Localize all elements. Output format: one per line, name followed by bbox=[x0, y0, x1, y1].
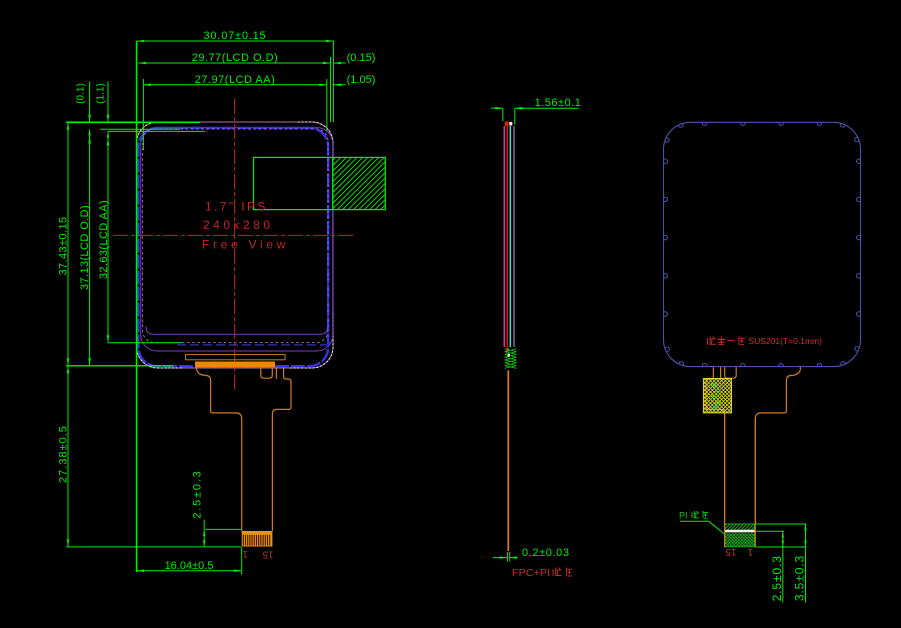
svg-text:(1.05): (1.05) bbox=[347, 74, 376, 86]
svg-text:(1.1): (1.1) bbox=[96, 83, 107, 104]
svg-text:15: 15 bbox=[262, 548, 274, 559]
svg-text:(0.1): (0.1) bbox=[76, 83, 87, 104]
svg-text:37.13(LCD O.D): 37.13(LCD O.D) bbox=[79, 205, 91, 290]
svg-text:27.38±0.5: 27.38±0.5 bbox=[58, 425, 70, 483]
svg-text:240x280: 240x280 bbox=[203, 218, 274, 232]
svg-text:(0.15): (0.15) bbox=[347, 52, 376, 64]
svg-text:1.56±0.1: 1.56±0.1 bbox=[535, 97, 582, 109]
svg-text:3.5±0.3: 3.5±0.3 bbox=[793, 555, 807, 601]
svg-text:0.2±0.03: 0.2±0.03 bbox=[522, 547, 570, 559]
svg-text:1: 1 bbox=[242, 548, 248, 559]
svg-text:29.77(LCD O.D): 29.77(LCD O.D) bbox=[192, 52, 278, 64]
svg-text:SUS201(T=0.1mm): SUS201(T=0.1mm) bbox=[749, 336, 823, 346]
svg-text:32.63(LCD AA): 32.63(LCD AA) bbox=[98, 200, 110, 279]
svg-text:FPC+PI: FPC+PI bbox=[512, 567, 550, 579]
svg-text:Free View: Free View bbox=[202, 237, 289, 251]
svg-text:15: 15 bbox=[725, 546, 737, 557]
svg-text:2.5±0.3: 2.5±0.3 bbox=[770, 555, 784, 601]
svg-text:30.07±0.15: 30.07±0.15 bbox=[204, 30, 267, 42]
svg-text:1: 1 bbox=[747, 546, 753, 557]
svg-text:16.04±0.5: 16.04±0.5 bbox=[165, 560, 214, 572]
svg-text:2.5±0.3: 2.5±0.3 bbox=[192, 469, 204, 518]
svg-text:37.43±0.15: 37.43±0.15 bbox=[58, 217, 70, 276]
svg-text:1.7" IPS: 1.7" IPS bbox=[205, 200, 268, 214]
svg-text:PI: PI bbox=[679, 511, 688, 521]
svg-text:27.97(LCD AA): 27.97(LCD AA) bbox=[195, 74, 275, 86]
